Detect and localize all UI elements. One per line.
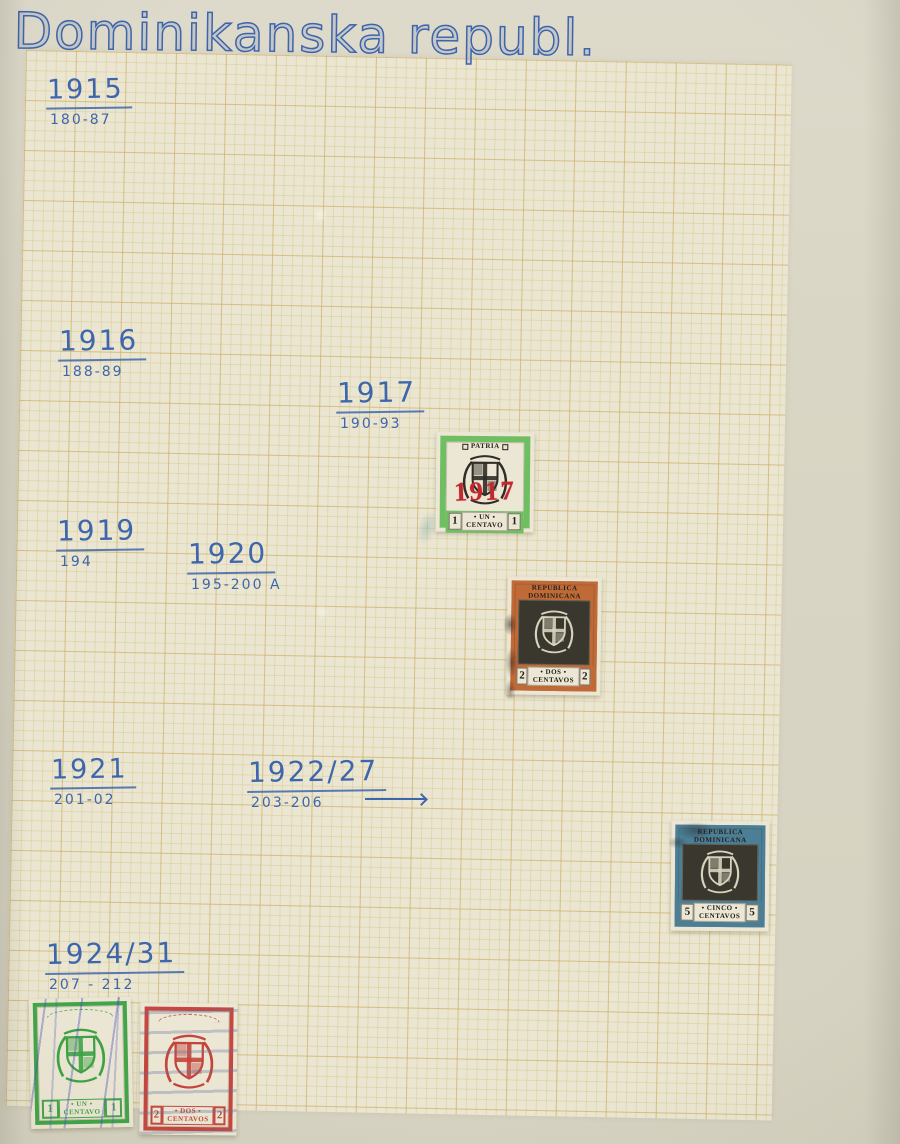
year-label-1920: 1920 195-200 A <box>187 540 282 593</box>
stamp-value-numeral: 1 <box>449 513 462 530</box>
year-text: 1919 <box>56 516 145 551</box>
stamp-frame: REPUBLICA DOMINICANA <box>510 580 598 691</box>
year-text: 1917 <box>336 378 425 413</box>
ornament-icon <box>462 444 468 450</box>
stamp-center <box>151 1023 227 1104</box>
stamp-value-numeral: 5 <box>745 904 758 921</box>
stamp-frame: REPUBLICA DOMINICANA <box>675 825 766 928</box>
stamp-frame: 1 • UN • CENTAVO 1 <box>33 1001 130 1125</box>
stamp-1c-green-1924: 1 • UN • CENTAVO 1 <box>29 997 134 1129</box>
year-label-1916: 1916 188-89 <box>58 327 146 380</box>
stamp-country-text: PATRIA <box>471 443 500 451</box>
stamp-top-band: REPUBLICA DOMINICANA <box>678 828 762 845</box>
stamp-frame: 2 • DOS • CENTAVOS 2 <box>143 1007 233 1132</box>
stamp-denomination: • DOS • CENTAVOS <box>528 667 580 686</box>
year-text: 1922/27 <box>247 757 387 793</box>
stamp-top-band: PATRIA <box>446 442 524 451</box>
stamp-center <box>40 1017 122 1097</box>
year-text: 1915 <box>46 75 132 109</box>
stamp-value-numeral: 5 <box>681 904 694 921</box>
catalog-numbers: 201-02 <box>50 792 136 808</box>
stamp-2c-red-1924: 2 • DOS • CENTAVOS 2 <box>139 1002 237 1135</box>
coat-of-arms-icon <box>697 847 743 899</box>
year-label-1922-27: 1922/27 203-206 <box>247 758 386 811</box>
catalog-numbers: 180-87 <box>46 112 132 128</box>
stamp-top-ribbon <box>158 1014 219 1023</box>
underline-arrow <box>365 798 425 800</box>
coat-of-arms-icon <box>51 1024 110 1089</box>
stamp-denomination: • CINCO • CENTAVOS <box>694 903 746 922</box>
stamp-denomination: • DOS • CENTAVOS <box>162 1106 214 1125</box>
page-title: Dominikanska republ. <box>13 2 597 67</box>
album-page-photo: Dominikanska republ. 1915 180-87 1916 18… <box>0 0 900 1144</box>
stamp-top-ribbon <box>47 1008 113 1017</box>
stamp-center <box>682 844 758 902</box>
ornament-icon <box>503 444 509 450</box>
year-label-1915: 1915 180-87 <box>46 76 132 128</box>
stamp-center <box>518 600 591 666</box>
catalog-numbers: 195-200 A <box>187 577 282 593</box>
year-text: 1924/31 <box>45 939 185 975</box>
stamp-value-numeral: 1 <box>105 1098 122 1117</box>
stamp-value-band: 1 • UN • CENTAVO 1 <box>39 1096 125 1121</box>
year-text: 1916 <box>58 326 147 361</box>
stamp-value-numeral: 1 <box>42 1099 59 1118</box>
catalog-numbers: 194 <box>56 554 144 570</box>
year-label-1919: 1919 194 <box>56 517 144 570</box>
stamp-value-numeral: 2 <box>516 668 528 685</box>
stamp-denomination: • UN • CENTAVO <box>461 512 508 531</box>
year-label-1921: 1921 201-02 <box>50 756 136 808</box>
stamp-2c-orange: REPUBLICA DOMINICANA <box>506 576 602 695</box>
stamp-denomination: • UN • CENTAVO <box>58 1099 105 1119</box>
stamp-value-numeral: 2 <box>150 1106 162 1125</box>
coat-of-arms-icon <box>159 1031 218 1096</box>
red-1917-overprint: 1917 <box>436 475 535 509</box>
stamp-5c-blue: REPUBLICA DOMINICANA <box>671 821 770 932</box>
stamp-value-numeral: 2 <box>214 1106 226 1125</box>
stamp-value-numeral: 2 <box>579 669 591 686</box>
catalog-numbers: 207 - 212 <box>45 977 184 993</box>
stamp-top-band: REPUBLICA DOMINICANA <box>515 583 595 600</box>
catalog-numbers: 188-89 <box>58 364 146 380</box>
stamp-value-numeral: 1 <box>508 513 521 530</box>
stamp-value-band: 1 • UN • CENTAVO 1 <box>446 510 524 533</box>
year-text: 1920 <box>187 539 276 574</box>
year-label-1924-31: 1924/31 207 - 212 <box>45 940 184 993</box>
stamp-value-band: 2 • DOS • CENTAVOS 2 <box>147 1104 228 1128</box>
year-text: 1921 <box>50 755 136 789</box>
coat-of-arms-icon <box>531 607 578 660</box>
stamp-1917-1c-green: PATRIA <box>436 432 535 533</box>
catalog-numbers: 190-93 <box>336 416 424 432</box>
stamp-value-band: 2 • DOS • CENTAVOS 2 <box>513 665 593 689</box>
year-label-1917: 1917 190-93 <box>336 379 424 432</box>
stamp-value-band: 5 • CINCO • CENTAVOS 5 <box>678 901 762 924</box>
